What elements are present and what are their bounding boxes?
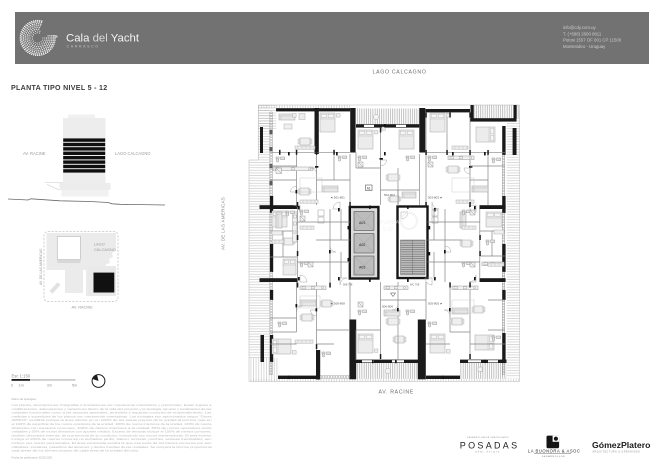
svg-text:T. (+598) 2600 0811: T. (+598) 2600 0811 (563, 31, 602, 36)
svg-text:utilizables: escaleras, pasadi: utilizables: escaleras, pasadizos del as… (12, 445, 213, 449)
svg-text:AV. RACINE: AV. RACINE (23, 151, 46, 156)
svg-text:Esc 1:150: Esc 1:150 (12, 374, 31, 379)
svg-text:A03: A03 (359, 266, 365, 270)
svg-text:CARRASCO: CARRASCO (67, 45, 100, 49)
svg-text:5-12: 5-12 (383, 227, 393, 233)
svg-text:AV. DE LAS AMERICAS: AV. DE LAS AMERICAS (221, 197, 226, 250)
svg-text:DESARROLLOS: DESARROLLOS (542, 455, 565, 458)
svg-text:LAGO CALCAGNO: LAGO CALCAGNO (373, 70, 427, 76)
svg-text:APROX" vendible porque la area: APROX" vendible porque la area interior … (12, 418, 213, 422)
svg-text:LA BUONORA & ASOC.: LA BUONORA & ASOC. (528, 448, 580, 453)
svg-text:Los planos, descripciones, fot: Los planos, descripciones, fotografias e… (12, 403, 213, 407)
svg-text:◄ 508-808: ◄ 508-808 (330, 302, 345, 306)
svg-text:incluye sus muros perimetrales: incluye sus muros perimetrales. El area … (12, 441, 213, 445)
svg-text:GómezPlatero: GómezPlatero (592, 440, 650, 450)
svg-text:506-806: 506-806 (382, 305, 393, 309)
svg-text:502-802: 502-802 (384, 193, 395, 197)
svg-text:modificaciones, adecuaciones y: modificaciones, adecuaciones y variacion… (12, 407, 213, 411)
svg-text:info@cdy.com.uy: info@cdy.com.uy (563, 25, 597, 30)
svg-text:Montevideo - Uruguay: Montevideo - Uruguay (563, 44, 606, 49)
svg-text:medidas y superficies de los p: medidas y superficies de los planos son … (12, 414, 213, 418)
svg-text:divisorios con espacios comune: divisorios con espacios comunes, 100% de… (12, 426, 213, 430)
svg-text:total areas de los bienes prop: total areas de los bienes propios de cad… (12, 449, 140, 453)
svg-text:A01: A01 (359, 221, 365, 225)
svg-text:AV. RACINE: AV. RACINE (72, 305, 94, 310)
svg-text:0: 0 (11, 384, 13, 388)
svg-text:incluye el 100% de metros comu: incluye el 100% de metros comunes no tec… (12, 437, 213, 441)
svg-text:unidades y 50% de muros diviso: unidades y 50% de muros divisorios con a… (12, 430, 212, 434)
svg-text:5m: 5m (72, 384, 77, 388)
svg-text:Cala del Yacht: Cala del Yacht (66, 33, 140, 45)
svg-text:AV. RACINE: AV. RACINE (379, 390, 415, 396)
svg-text:POSADAS: POSADAS (460, 441, 520, 451)
svg-text:LAGO CALCAGNO: LAGO CALCAGNO (115, 151, 151, 156)
svg-text:REAL ESTATE: REAL ESTATE (475, 451, 500, 454)
svg-text:el 100% de superficie de los m: el 100% de superficie de los muros exter… (12, 422, 213, 426)
svg-text:AV. DE LAS AMERICAS: AV. DE LAS AMERICAS (39, 248, 43, 285)
svg-text:508 708: 508 708 (343, 283, 353, 287)
svg-text:PLANTA TIPO NIVEL 5 - 12: PLANTA TIPO NIVEL 5 - 12 (11, 84, 108, 92)
svg-text:1m: 1m (19, 384, 24, 388)
svg-text:A02: A02 (359, 243, 365, 247)
svg-text:tambien decorados internas, de: tambien decorados internas, de una armon… (12, 433, 212, 437)
svg-text:DESARROLLADOR INMOBILIARIO: DESARROLLADOR INMOBILIARIO (467, 436, 509, 439)
svg-text:WC 708: WC 708 (410, 283, 420, 287)
svg-text:503-803 ►: 503-803 ► (428, 196, 443, 200)
svg-text:LAGO: LAGO (94, 242, 105, 247)
svg-text:CALCAGNO: CALCAGNO (94, 247, 116, 252)
svg-text:ARQUITECTURA & URBANISMO: ARQUITECTURA & URBANISMO (593, 451, 641, 454)
svg-text:2m: 2m (47, 384, 52, 388)
svg-text:A1: A1 (367, 186, 371, 190)
svg-text:Fecha de publicacion 02/11/202: Fecha de publicacion 02/11/2021 (12, 456, 53, 460)
svg-text:unidades funcionales como a la: unidades funcionales como a las sectores… (12, 411, 213, 415)
svg-text:Marco de tipologias:: Marco de tipologias: (12, 397, 37, 401)
svg-text:PLANTA: PLANTA (380, 220, 400, 226)
svg-text:Potosi 1557 OF 001 CP 11500: Potosi 1557 OF 001 CP 11500 (563, 38, 622, 43)
svg-text:505-805 ►: 505-805 ► (428, 302, 443, 306)
svg-text:◄ 501-801: ◄ 501-801 (330, 196, 345, 200)
